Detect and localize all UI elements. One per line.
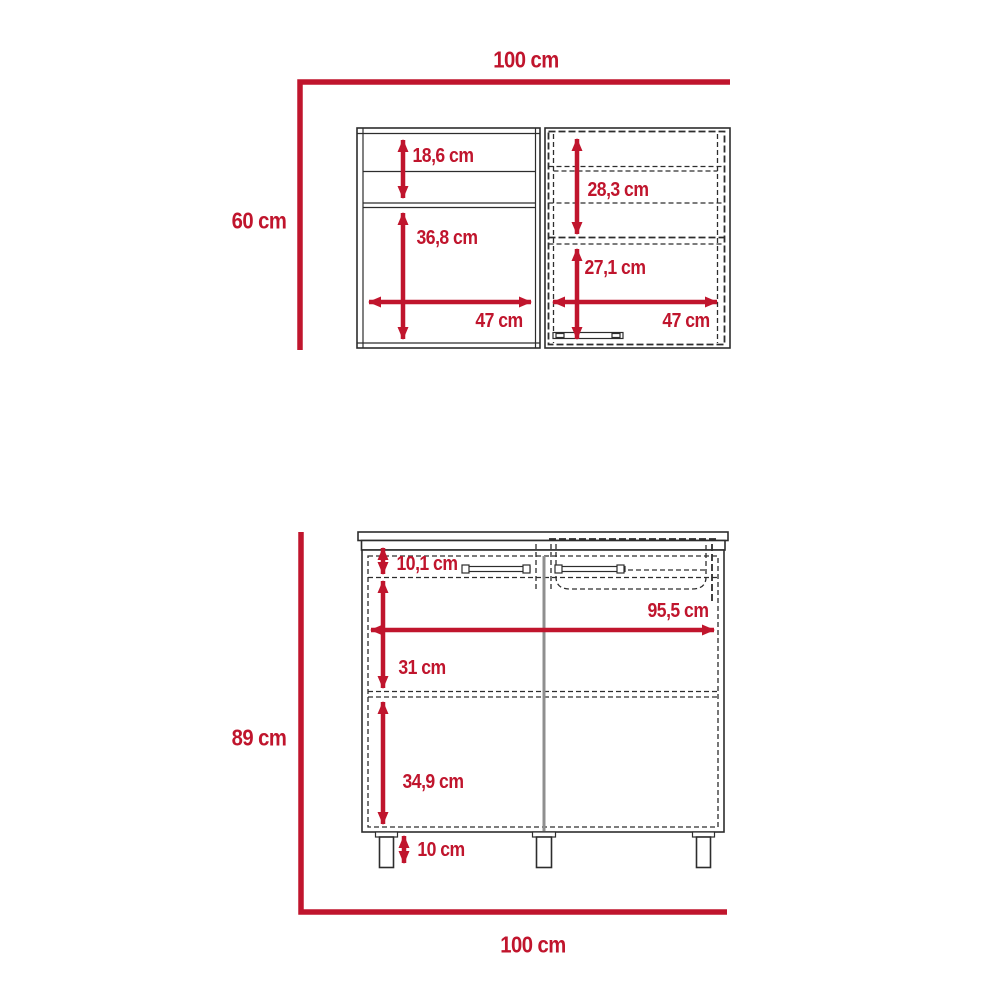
base-leg-height-label: 10 cm: [417, 840, 464, 860]
base-interior-width-label: 95,5 cm: [648, 601, 709, 621]
base-upper-compartment-label: 31 cm: [398, 658, 445, 678]
door-width-label: 47 cm: [662, 311, 709, 331]
upper-lower-section-height-label: 36,8 cm: [417, 228, 478, 248]
upper-open-section-width-label: 47 cm: [475, 311, 522, 331]
upper-top-shelf-height-label: 18,6 cm: [413, 146, 474, 166]
base-top-rail-height-label: 10,1 cm: [397, 554, 458, 574]
base-overall-width-label: 100 cm: [500, 934, 565, 957]
base-lower-compartment-label: 34,9 cm: [403, 772, 464, 792]
base-overall-height-label: 89 cm: [232, 727, 287, 750]
door-upper-compartment-label: 28,3 cm: [588, 180, 649, 200]
upper-door-handle: [553, 333, 623, 339]
upper-overall-height-label: 60 cm: [232, 210, 287, 233]
door-lower-compartment-label: 27,1 cm: [585, 258, 646, 278]
furniture-dimension-diagram: 100 cm 60 cm 18,6 cm 36,8 cm 47 cm 28,3 …: [0, 0, 1000, 1000]
upper-overall-width-label: 100 cm: [493, 49, 558, 72]
diagram-linework: [0, 0, 1000, 1000]
